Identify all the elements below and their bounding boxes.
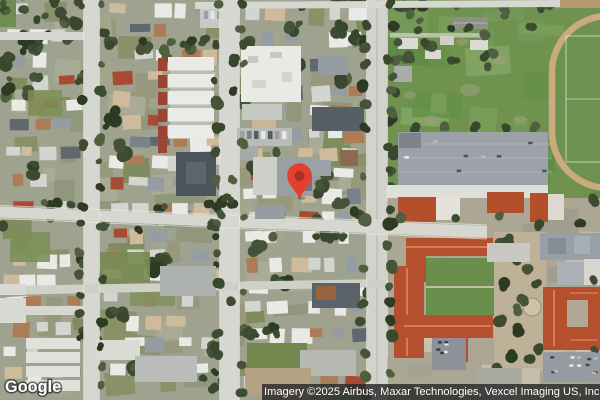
svg-text:Google: Google	[5, 378, 61, 396]
